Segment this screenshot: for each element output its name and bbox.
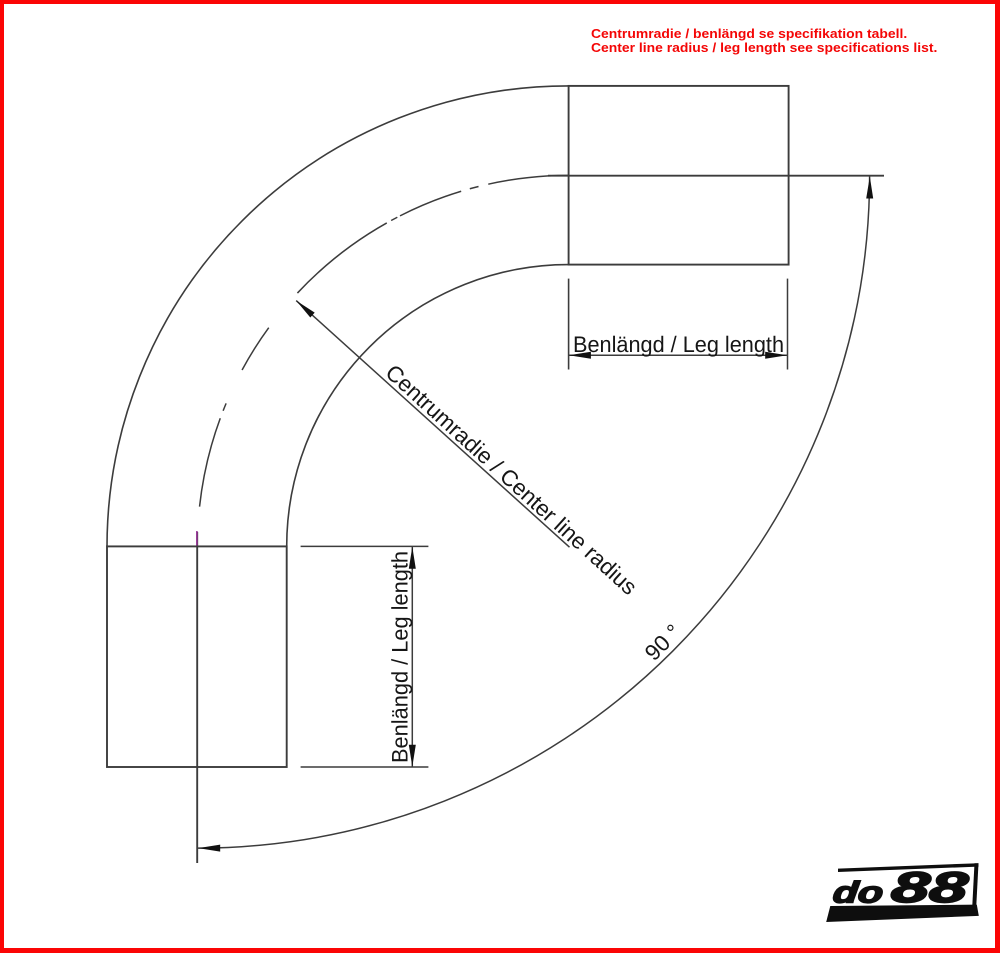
svg-text:do: do <box>831 877 884 910</box>
svg-text:Benlängd / Leg length: Benlängd / Leg length <box>573 332 784 357</box>
svg-text:Benlängd / Leg length: Benlängd / Leg length <box>388 551 413 763</box>
svg-text:88: 88 <box>889 864 970 912</box>
svg-text:90 °: 90 ° <box>640 619 686 665</box>
svg-text:Centrumradie / Center line rad: Centrumradie / Center line radius <box>381 360 642 600</box>
